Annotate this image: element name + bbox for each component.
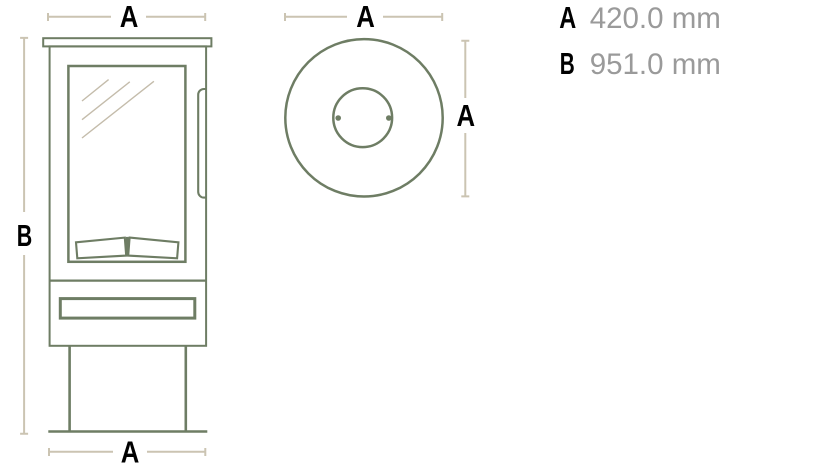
svg-text:A: A <box>457 98 476 133</box>
svg-text:A: A <box>120 0 139 34</box>
svg-text:A: A <box>559 1 576 35</box>
svg-text:B: B <box>560 47 575 81</box>
svg-text:951.0 mm: 951.0 mm <box>590 48 721 81</box>
svg-text:420.0 mm: 420.0 mm <box>590 2 721 35</box>
svg-text:B: B <box>17 219 33 253</box>
svg-text:A: A <box>356 0 375 34</box>
svg-text:A: A <box>121 435 140 470</box>
